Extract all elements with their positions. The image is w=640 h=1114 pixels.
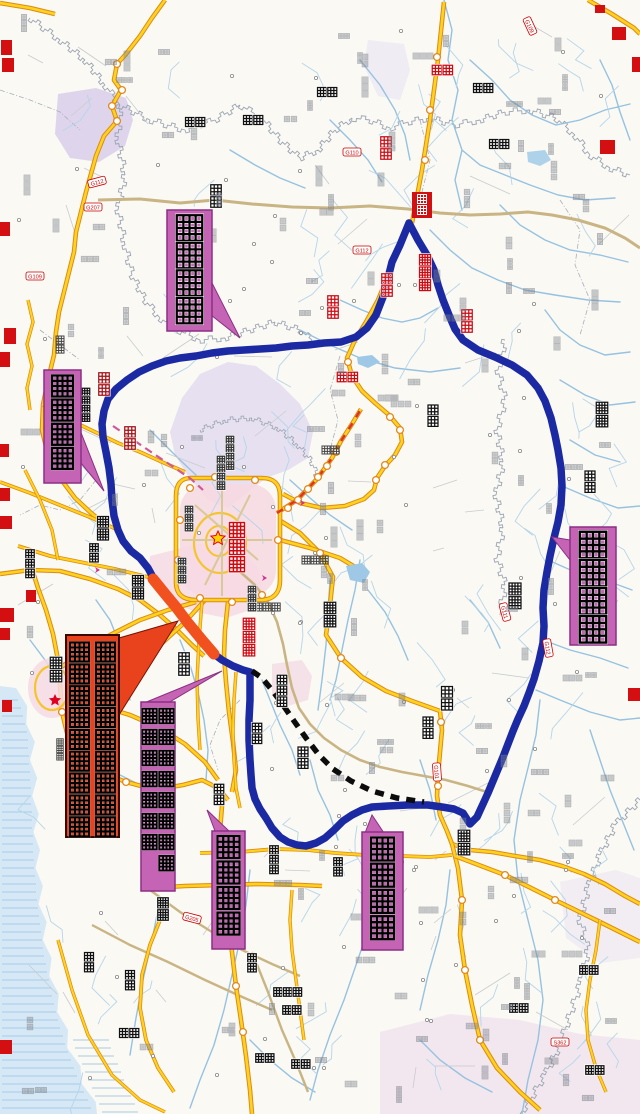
svg-text:S362: S362 [553, 1040, 566, 1046]
svg-text:G110: G110 [345, 150, 358, 156]
svg-text:G109: G109 [28, 274, 42, 280]
svg-text:G207: G207 [86, 205, 100, 211]
svg-text:G101: G101 [432, 765, 439, 779]
svg-text:G112: G112 [355, 248, 368, 254]
